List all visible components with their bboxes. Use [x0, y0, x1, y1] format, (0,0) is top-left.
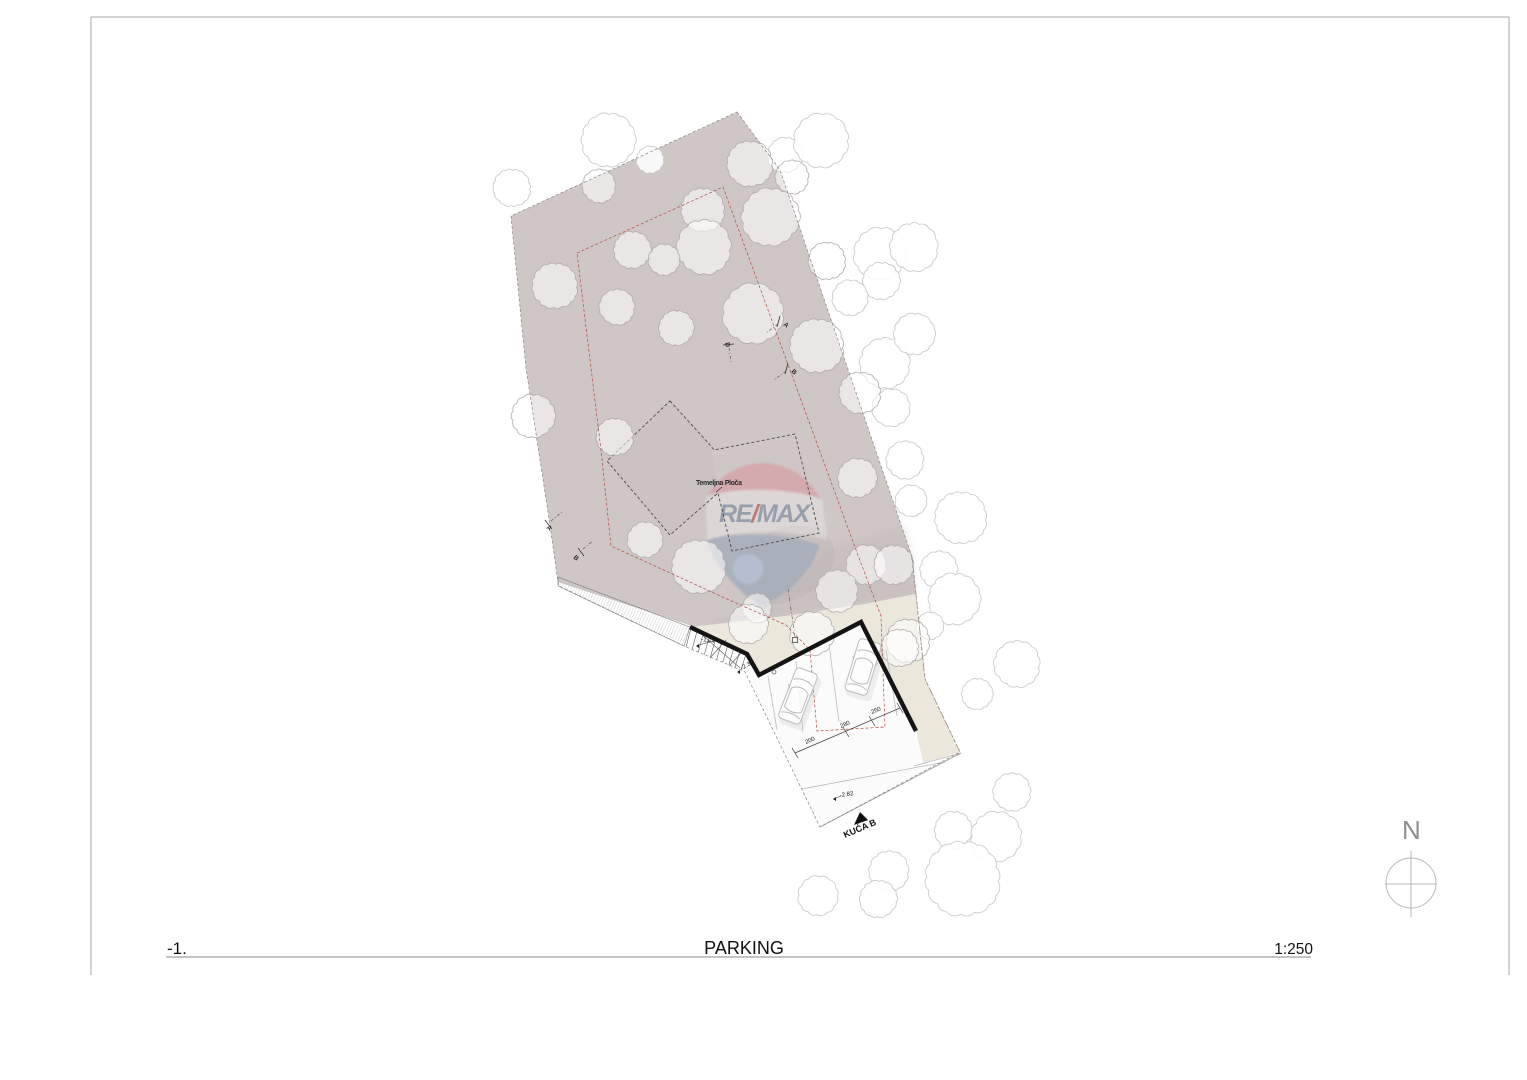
svg-text:-1.: -1.: [167, 939, 187, 958]
svg-text:RE/MAX: RE/MAX: [719, 500, 811, 528]
svg-text:N: N: [1402, 815, 1421, 845]
svg-text:1:250: 1:250: [1274, 941, 1313, 958]
svg-text:Temeljna Ploča: Temeljna Ploča: [696, 480, 742, 487]
svg-text:PARKING: PARKING: [704, 938, 784, 958]
